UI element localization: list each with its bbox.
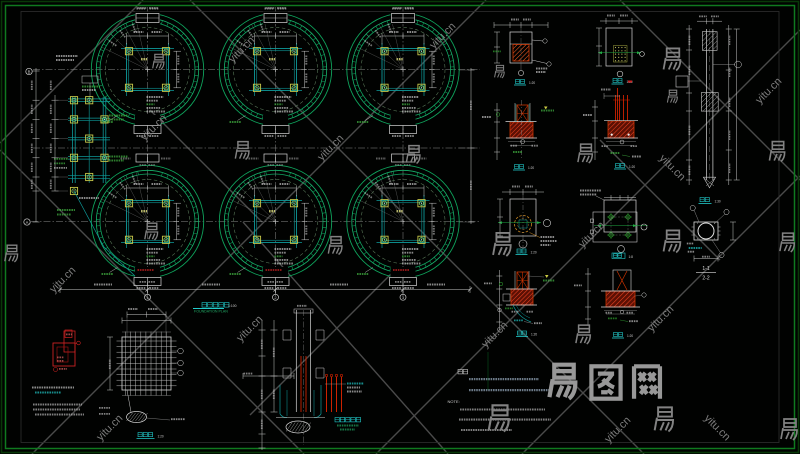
svg-text:2-2: 2-2 — [702, 276, 709, 282]
svg-text:1:20: 1:20 — [531, 251, 537, 255]
svg-text:NOTE:: NOTE: — [448, 399, 460, 404]
svg-text:FOUNDATION PLAN: FOUNDATION PLAN — [194, 310, 228, 314]
svg-text:B: B — [28, 69, 31, 74]
svg-text:1:20: 1:20 — [629, 165, 635, 169]
svg-text:1:20: 1:20 — [158, 435, 164, 439]
svg-text:1:30: 1:30 — [715, 200, 721, 204]
svg-text:1-1: 1-1 — [702, 266, 709, 272]
svg-text:A: A — [26, 220, 29, 225]
svg-text:1:20: 1:20 — [529, 81, 535, 85]
svg-text:1:20: 1:20 — [531, 333, 537, 337]
svg-text:1:20: 1:20 — [528, 166, 534, 170]
svg-text:1:8: 1:8 — [629, 255, 634, 259]
svg-text:1:20: 1:20 — [627, 334, 633, 338]
svg-text:1:100: 1:100 — [228, 304, 237, 308]
